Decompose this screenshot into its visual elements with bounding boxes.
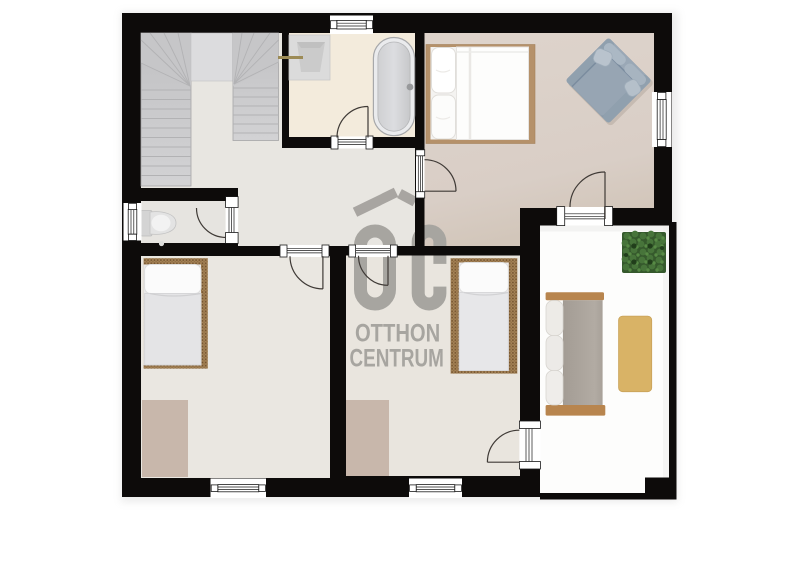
svg-text:CENTRUM: CENTRUM bbox=[350, 345, 444, 373]
svg-text:OTTHON: OTTHON bbox=[355, 319, 440, 347]
